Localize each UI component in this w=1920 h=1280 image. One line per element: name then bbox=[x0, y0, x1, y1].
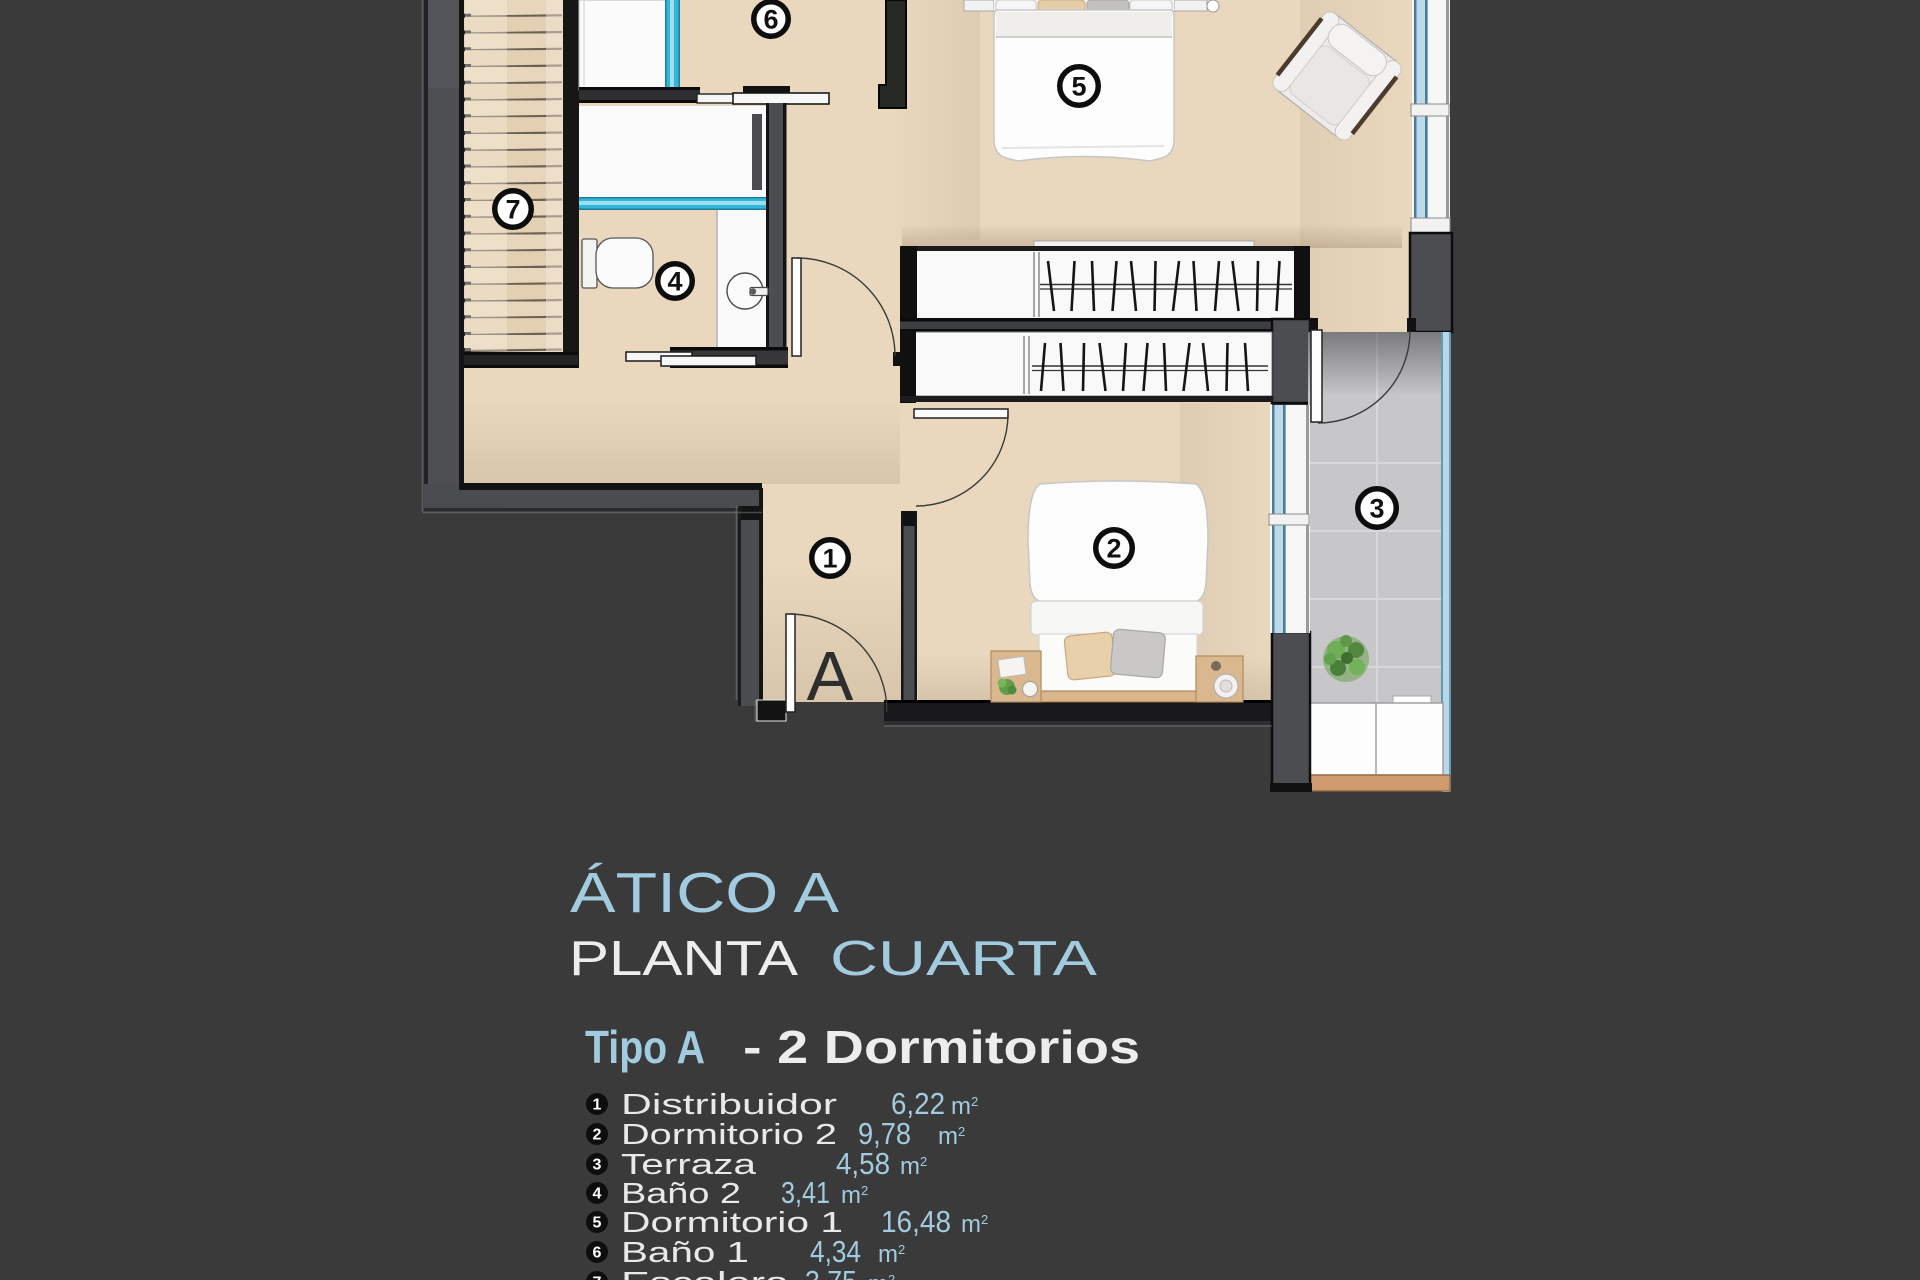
svg-text:A: A bbox=[807, 637, 854, 715]
svg-text:2: 2 bbox=[1106, 534, 1121, 564]
svg-text:Terraza: Terraza bbox=[621, 1149, 757, 1181]
svg-text:Tipo A: Tipo A bbox=[585, 1021, 705, 1073]
svg-text:7: 7 bbox=[593, 1275, 602, 1280]
svg-text:5: 5 bbox=[1071, 72, 1086, 102]
svg-text:Baño 2: Baño 2 bbox=[621, 1178, 741, 1210]
svg-text:7: 7 bbox=[505, 195, 520, 225]
svg-text:1: 1 bbox=[822, 544, 837, 574]
svg-text:3: 3 bbox=[1369, 494, 1384, 524]
svg-text:Dormitorio 2: Dormitorio 2 bbox=[621, 1119, 837, 1151]
svg-text:CUARTA: CUARTA bbox=[830, 931, 1097, 986]
svg-text:16,48: 16,48 bbox=[881, 1204, 951, 1239]
svg-text:m2: m2 bbox=[868, 1271, 895, 1280]
svg-text:4,58: 4,58 bbox=[836, 1146, 890, 1181]
svg-text:- 2 Dormitorios: - 2 Dormitorios bbox=[743, 1021, 1140, 1073]
svg-text:3,75: 3,75 bbox=[805, 1264, 857, 1280]
svg-text:1: 1 bbox=[593, 1097, 602, 1114]
svg-text:6: 6 bbox=[763, 5, 778, 35]
svg-text:Baño 1: Baño 1 bbox=[621, 1237, 749, 1269]
svg-text:PLANTA: PLANTA bbox=[569, 931, 798, 986]
svg-text:ÁTICO A: ÁTICO A bbox=[570, 861, 839, 925]
svg-text:4: 4 bbox=[593, 1186, 602, 1203]
svg-text:6: 6 bbox=[593, 1245, 602, 1262]
svg-text:5: 5 bbox=[593, 1215, 602, 1232]
svg-text:Distribuidor: Distribuidor bbox=[621, 1089, 837, 1121]
svg-text:2: 2 bbox=[593, 1127, 602, 1144]
svg-text:3: 3 bbox=[593, 1157, 602, 1174]
svg-text:3,41: 3,41 bbox=[781, 1175, 830, 1210]
svg-text:4: 4 bbox=[667, 267, 682, 297]
svg-text:Escalera: Escalera bbox=[621, 1267, 790, 1280]
